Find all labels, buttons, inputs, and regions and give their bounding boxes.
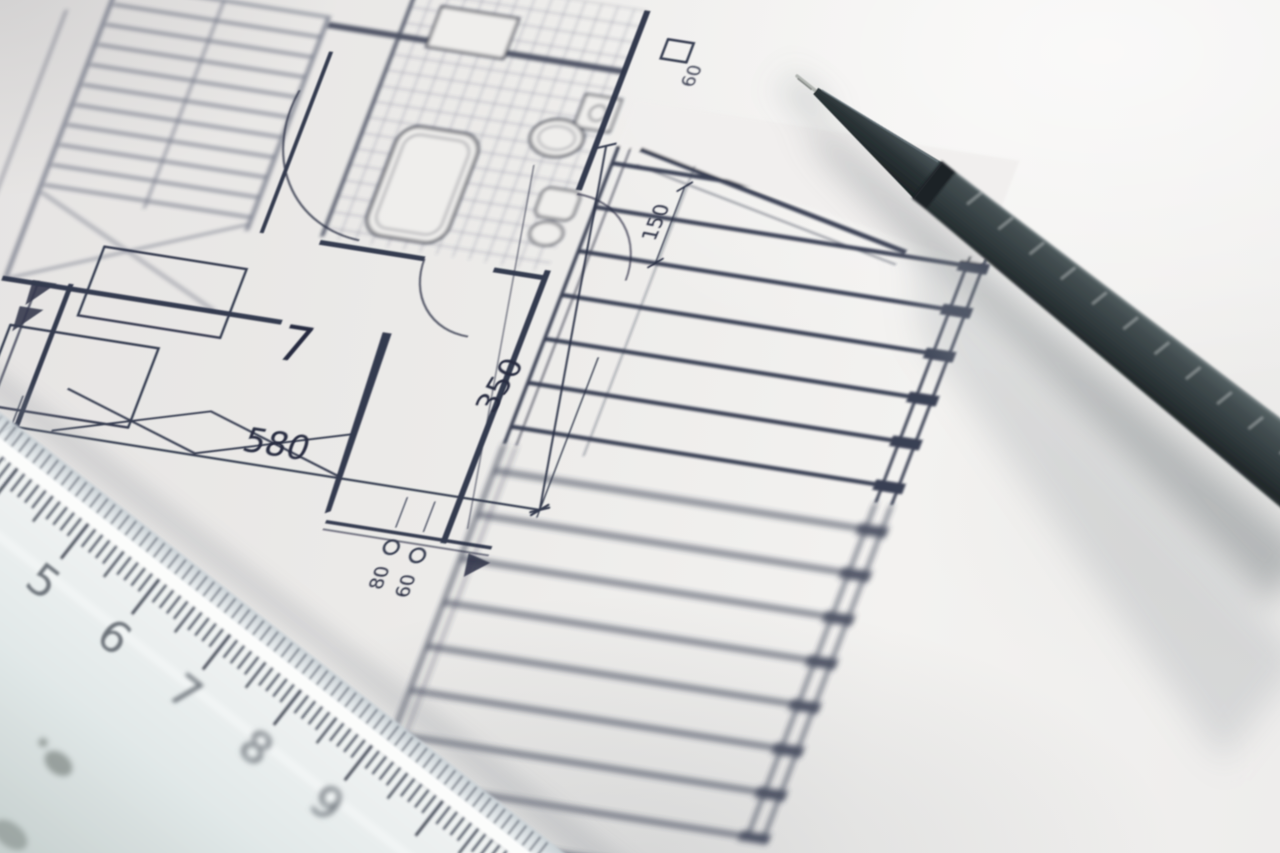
photo-scene: 7 580 350 80 60 150 60 bbox=[0, 0, 1280, 853]
stair-steps bbox=[39, 0, 329, 231]
staircase bbox=[0, 0, 329, 312]
dim-580-label: 580 bbox=[237, 421, 316, 469]
photo-canvas: 7 580 350 80 60 150 60 bbox=[0, 0, 1280, 853]
door-arc-room bbox=[399, 259, 494, 337]
diameter-symbol-b bbox=[408, 548, 427, 564]
wall-column-box bbox=[661, 39, 694, 62]
wall-fin bbox=[314, 332, 399, 514]
dim-60-label: 60 bbox=[390, 573, 421, 600]
dim-80-label: 80 bbox=[364, 564, 395, 591]
dim-60-top-label: 60 bbox=[677, 63, 707, 89]
diameter-symbol-a bbox=[382, 539, 401, 555]
